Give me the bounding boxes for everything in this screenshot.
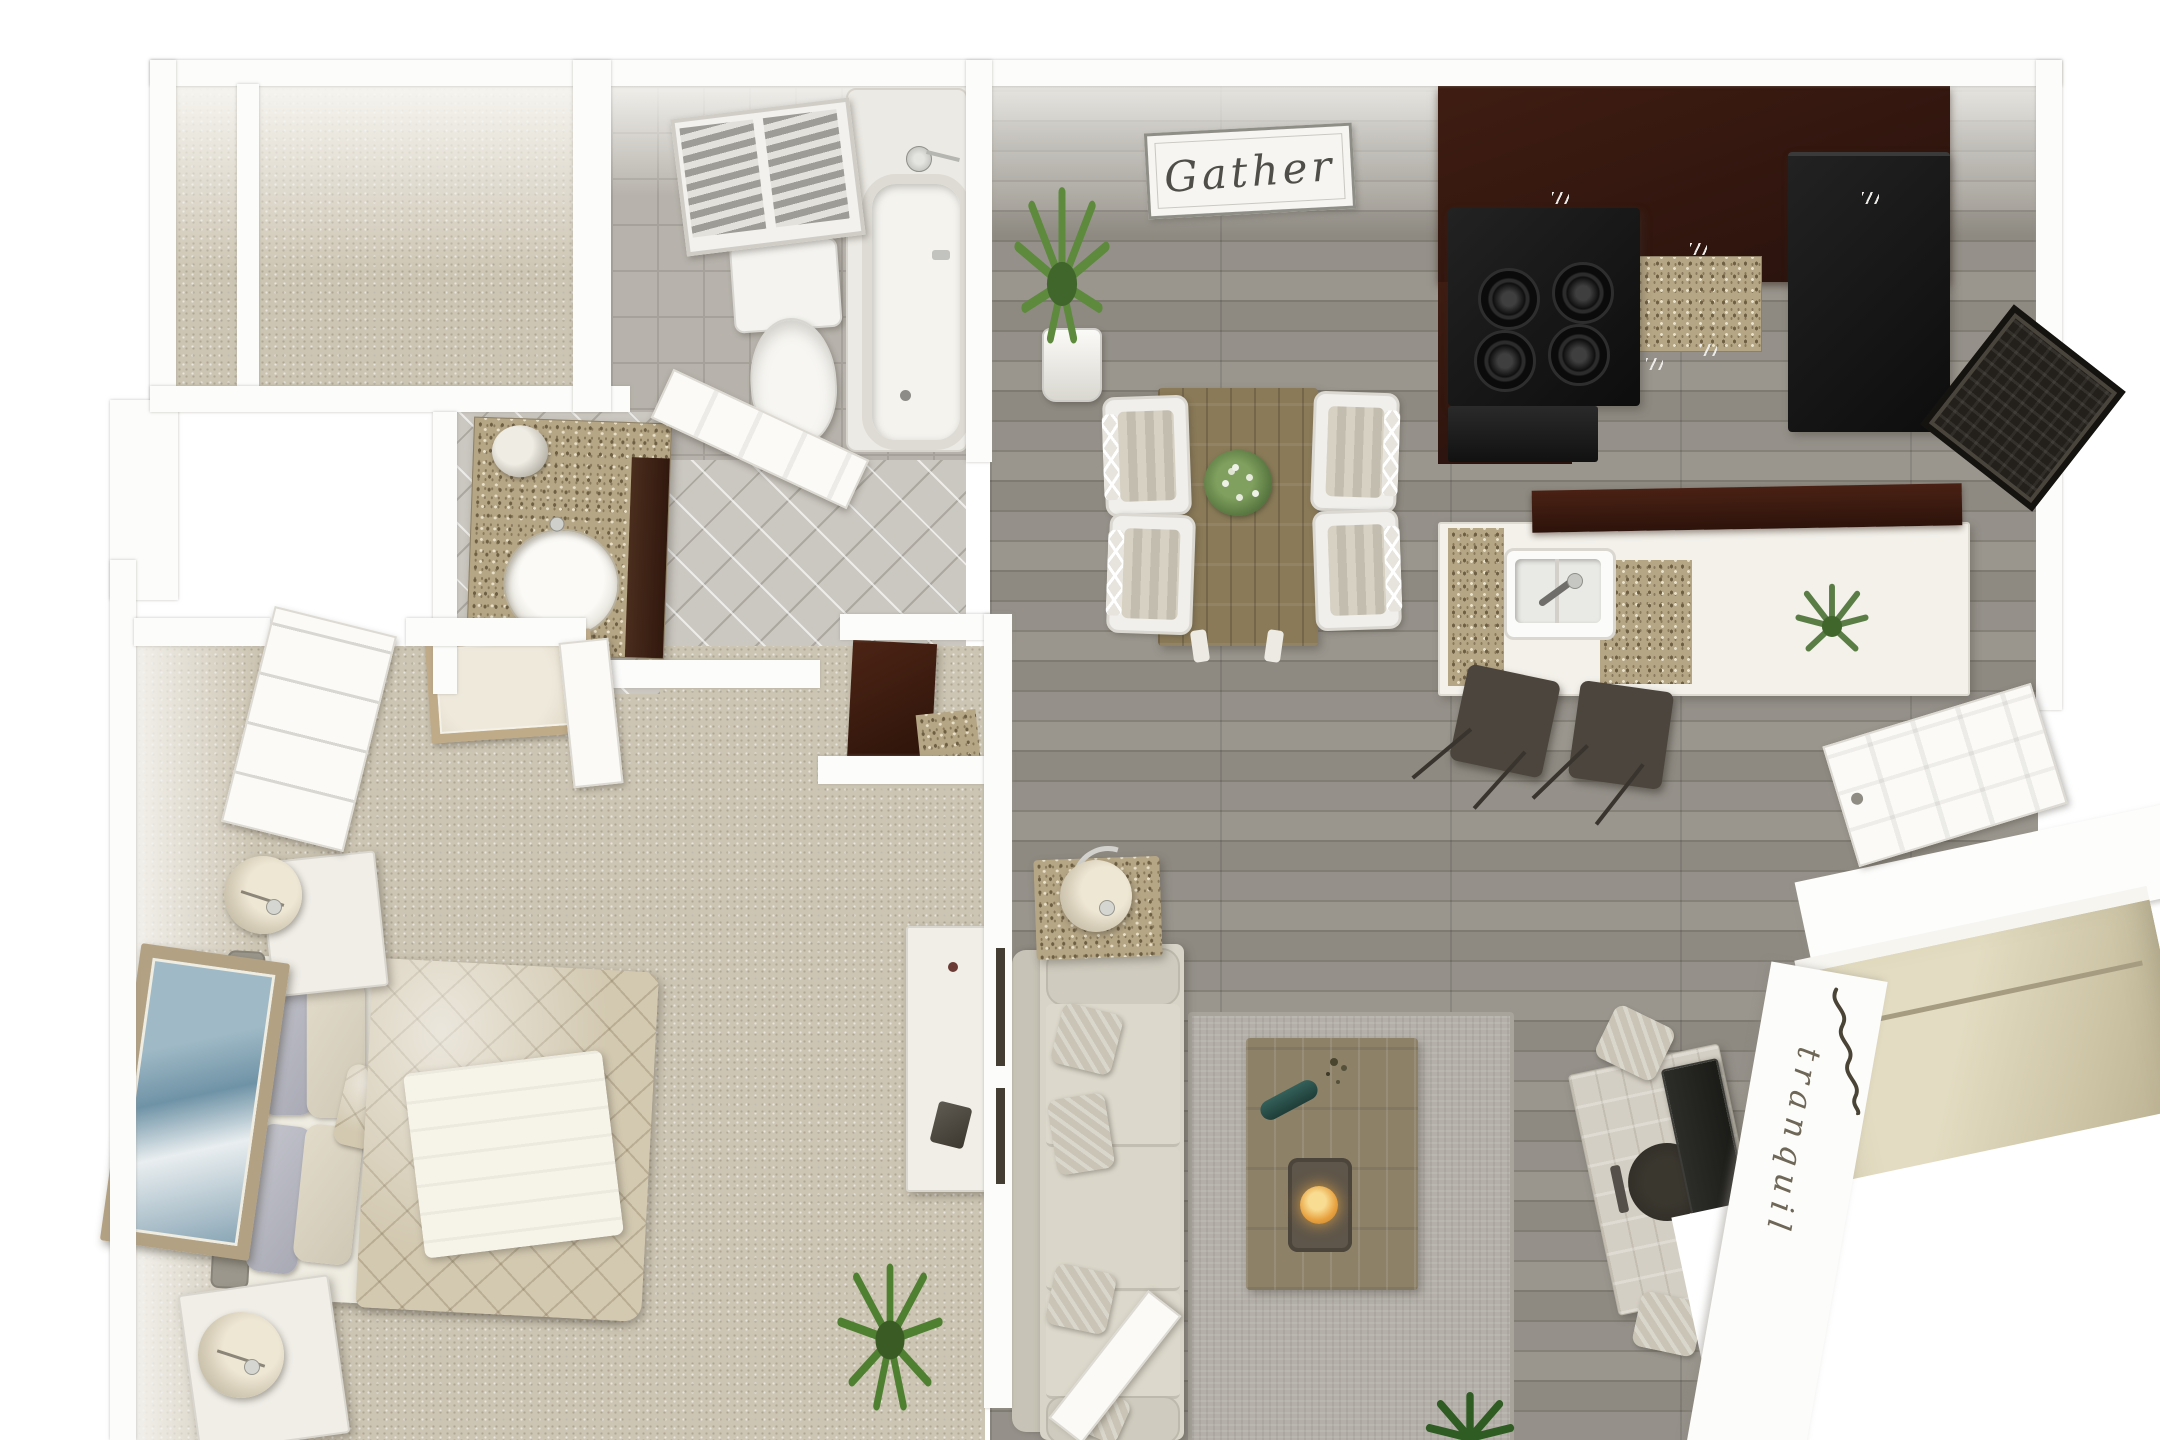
bedroom-console <box>906 926 990 1192</box>
exterior-wall-left-lower <box>110 560 136 1440</box>
bedroom-north-wall-west <box>134 618 270 646</box>
bar-sink <box>1504 548 1616 640</box>
bar-stool <box>1568 680 1675 790</box>
lamp-finial <box>266 899 282 915</box>
chair-x-back <box>1106 529 1125 616</box>
console-decor <box>929 1101 972 1150</box>
closet-divider-wall <box>237 84 259 388</box>
cabinet-handle <box>1862 192 1879 204</box>
tub-drain-icon <box>900 390 911 401</box>
table-lamp <box>224 856 302 934</box>
bar-upper-cap <box>1532 483 1963 532</box>
candle <box>1300 1186 1338 1224</box>
closets-south-wall <box>150 386 630 412</box>
bathroom-west-wall <box>573 60 611 412</box>
cabinet-handle <box>1700 344 1717 356</box>
stove <box>1448 208 1640 406</box>
tub-faucet-icon <box>932 250 950 260</box>
vanity-decor <box>491 424 549 478</box>
bedroom-north-wall-mid <box>406 618 586 646</box>
wall-trim <box>996 948 1005 1066</box>
entry-corner-fill <box>1940 1260 2160 1440</box>
corner-plant-icon <box>1424 1390 1516 1440</box>
vanity-cabinet-side <box>625 457 670 658</box>
tranquil-decal-text: tranquil <box>1758 1044 1829 1241</box>
stove-burner <box>1474 330 1536 392</box>
bar-stool <box>1449 663 1561 778</box>
niche-decor <box>916 709 981 763</box>
throw-pillow <box>1044 1262 1118 1336</box>
cabinet-handle <box>1552 192 1569 204</box>
console-knob-icon <box>948 962 958 972</box>
bar-granite-panel <box>1448 528 1504 686</box>
blinds-pane <box>679 119 766 237</box>
bathroom-east-wall <box>966 60 992 462</box>
chair-seat <box>1325 406 1384 498</box>
wall-trim <box>996 1088 1005 1184</box>
plant-foliage-icon <box>1004 182 1120 352</box>
exterior-wall-left-upper <box>150 60 176 412</box>
cabinet-handle <box>1690 243 1707 255</box>
dining-chair <box>1106 513 1196 636</box>
chair-seat <box>1117 410 1176 502</box>
faucet-base-icon <box>1567 573 1583 589</box>
centerpiece-flowers <box>1232 464 1239 471</box>
oven-drawer <box>1448 406 1598 462</box>
chair-seat <box>1121 528 1180 620</box>
potted-plant <box>1004 182 1120 402</box>
table-lamp <box>198 1312 284 1398</box>
lamp-finial <box>244 1359 260 1375</box>
throw-pillow <box>1046 1092 1115 1176</box>
niche-south-wall <box>818 756 1012 784</box>
tub-basin <box>862 174 970 450</box>
exterior-wall-top <box>150 60 2062 86</box>
bedroom-plant-icon <box>834 1262 946 1412</box>
table-centerpiece <box>1204 450 1272 516</box>
dining-chair <box>1102 395 1192 518</box>
bathtub <box>846 88 968 452</box>
chair-seat <box>1327 524 1386 616</box>
bathroom-window-blinds <box>670 98 865 257</box>
floor-plan-canvas: Gather <box>0 0 2160 1440</box>
decor-sprig <box>1330 1058 1338 1066</box>
chair-x-back <box>1102 414 1121 501</box>
stove-burner <box>1478 268 1540 330</box>
arc-lamp-shade <box>1060 860 1132 932</box>
chair-x-back <box>1383 525 1402 612</box>
white-throw-blanket <box>403 1050 624 1259</box>
stove-burner <box>1548 324 1610 386</box>
lamp-finial <box>1099 900 1115 916</box>
gather-sign: Gather <box>1144 123 1356 220</box>
dining-chair <box>1312 509 1402 632</box>
bar-plant-icon <box>1790 578 1874 666</box>
hall-south-wall <box>586 660 820 688</box>
closet-b-floor <box>259 86 573 388</box>
vanity-west-wall <box>433 412 457 694</box>
closet-a-floor <box>176 86 237 388</box>
stove-burner <box>1552 262 1614 324</box>
door-knob-icon <box>1850 791 1865 806</box>
cabinet-handle <box>1646 358 1663 370</box>
gather-sign-text: Gather <box>1163 141 1337 202</box>
blinds-pane <box>763 109 850 227</box>
dining-chair <box>1310 391 1400 514</box>
chair-x-back <box>1381 410 1400 497</box>
